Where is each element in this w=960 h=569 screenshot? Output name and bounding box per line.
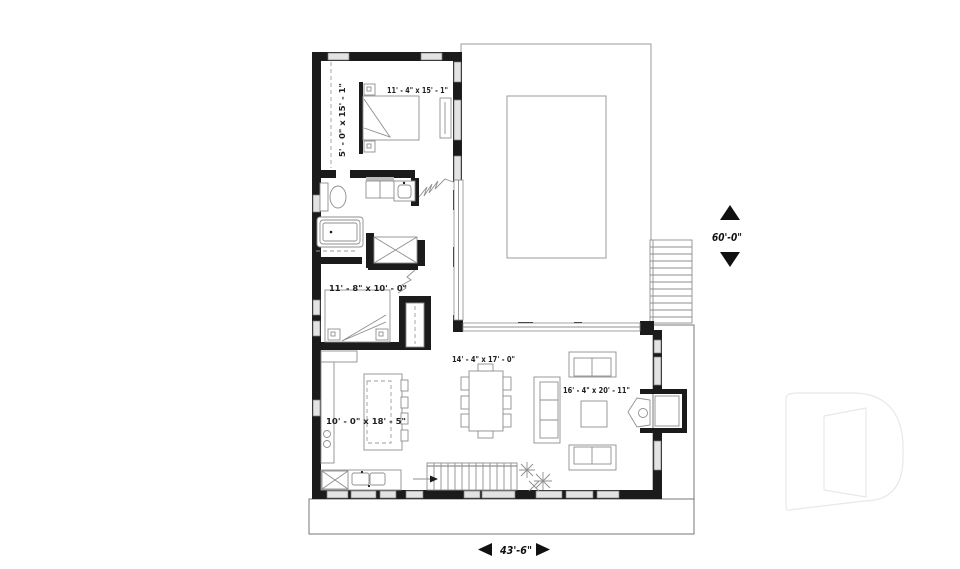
kitchen-dimensions-label: 10' - 0" x 18' - 5" xyxy=(326,417,406,426)
fireplace xyxy=(628,398,650,427)
plant xyxy=(519,462,552,491)
bedroom2-dimensions-label: 11' - 8" x 10' - 0" xyxy=(329,284,407,293)
sofa-bottom xyxy=(569,445,616,470)
depth-dimension-text: 60'-0" xyxy=(712,231,742,244)
floor-plan-page: 11' - 4" x 15' - 1" 5' - 0" x 15' - 1" 1… xyxy=(0,0,960,569)
exterior-stairs xyxy=(650,240,692,323)
bedroom1-closet-dimensions-label: 5' - 0" x 15' - 1" xyxy=(338,83,347,157)
floor-plan-canvas: 11' - 4" x 15' - 1" 5' - 0" x 15' - 1" 1… xyxy=(0,0,960,569)
bedroom1-dimensions-label: 11' - 4" x 15' - 1" xyxy=(387,86,448,95)
living-dimensions-label: 16' - 4" x 20' - 11" xyxy=(563,386,630,395)
dining-table xyxy=(469,371,503,431)
dining-furniture xyxy=(461,364,511,438)
arrow-right-icon xyxy=(536,543,550,556)
sofa-top xyxy=(569,352,616,377)
sofa-left xyxy=(534,377,560,443)
kitchen-island xyxy=(364,374,402,450)
garage-outline xyxy=(461,44,651,322)
toilet xyxy=(320,183,328,211)
arrow-up-icon xyxy=(720,205,740,220)
width-dimension: 43'-6" xyxy=(478,543,550,557)
arrow-left-icon xyxy=(478,543,492,556)
interior-stairs xyxy=(413,463,517,490)
kitchen-cabinet xyxy=(321,351,357,362)
glazed-walls xyxy=(454,180,640,331)
coffee-table xyxy=(581,401,607,427)
drummond-logo-watermark xyxy=(786,393,903,510)
width-dimension-text: 43'-6" xyxy=(499,544,532,557)
bathtub xyxy=(317,217,363,247)
dining-dimensions-label: 14' - 4" x 17' - 0" xyxy=(452,355,515,364)
arrow-down-icon xyxy=(720,252,740,267)
laundry-counter xyxy=(366,177,394,181)
depth-dimension: 60'-0" xyxy=(712,205,742,267)
